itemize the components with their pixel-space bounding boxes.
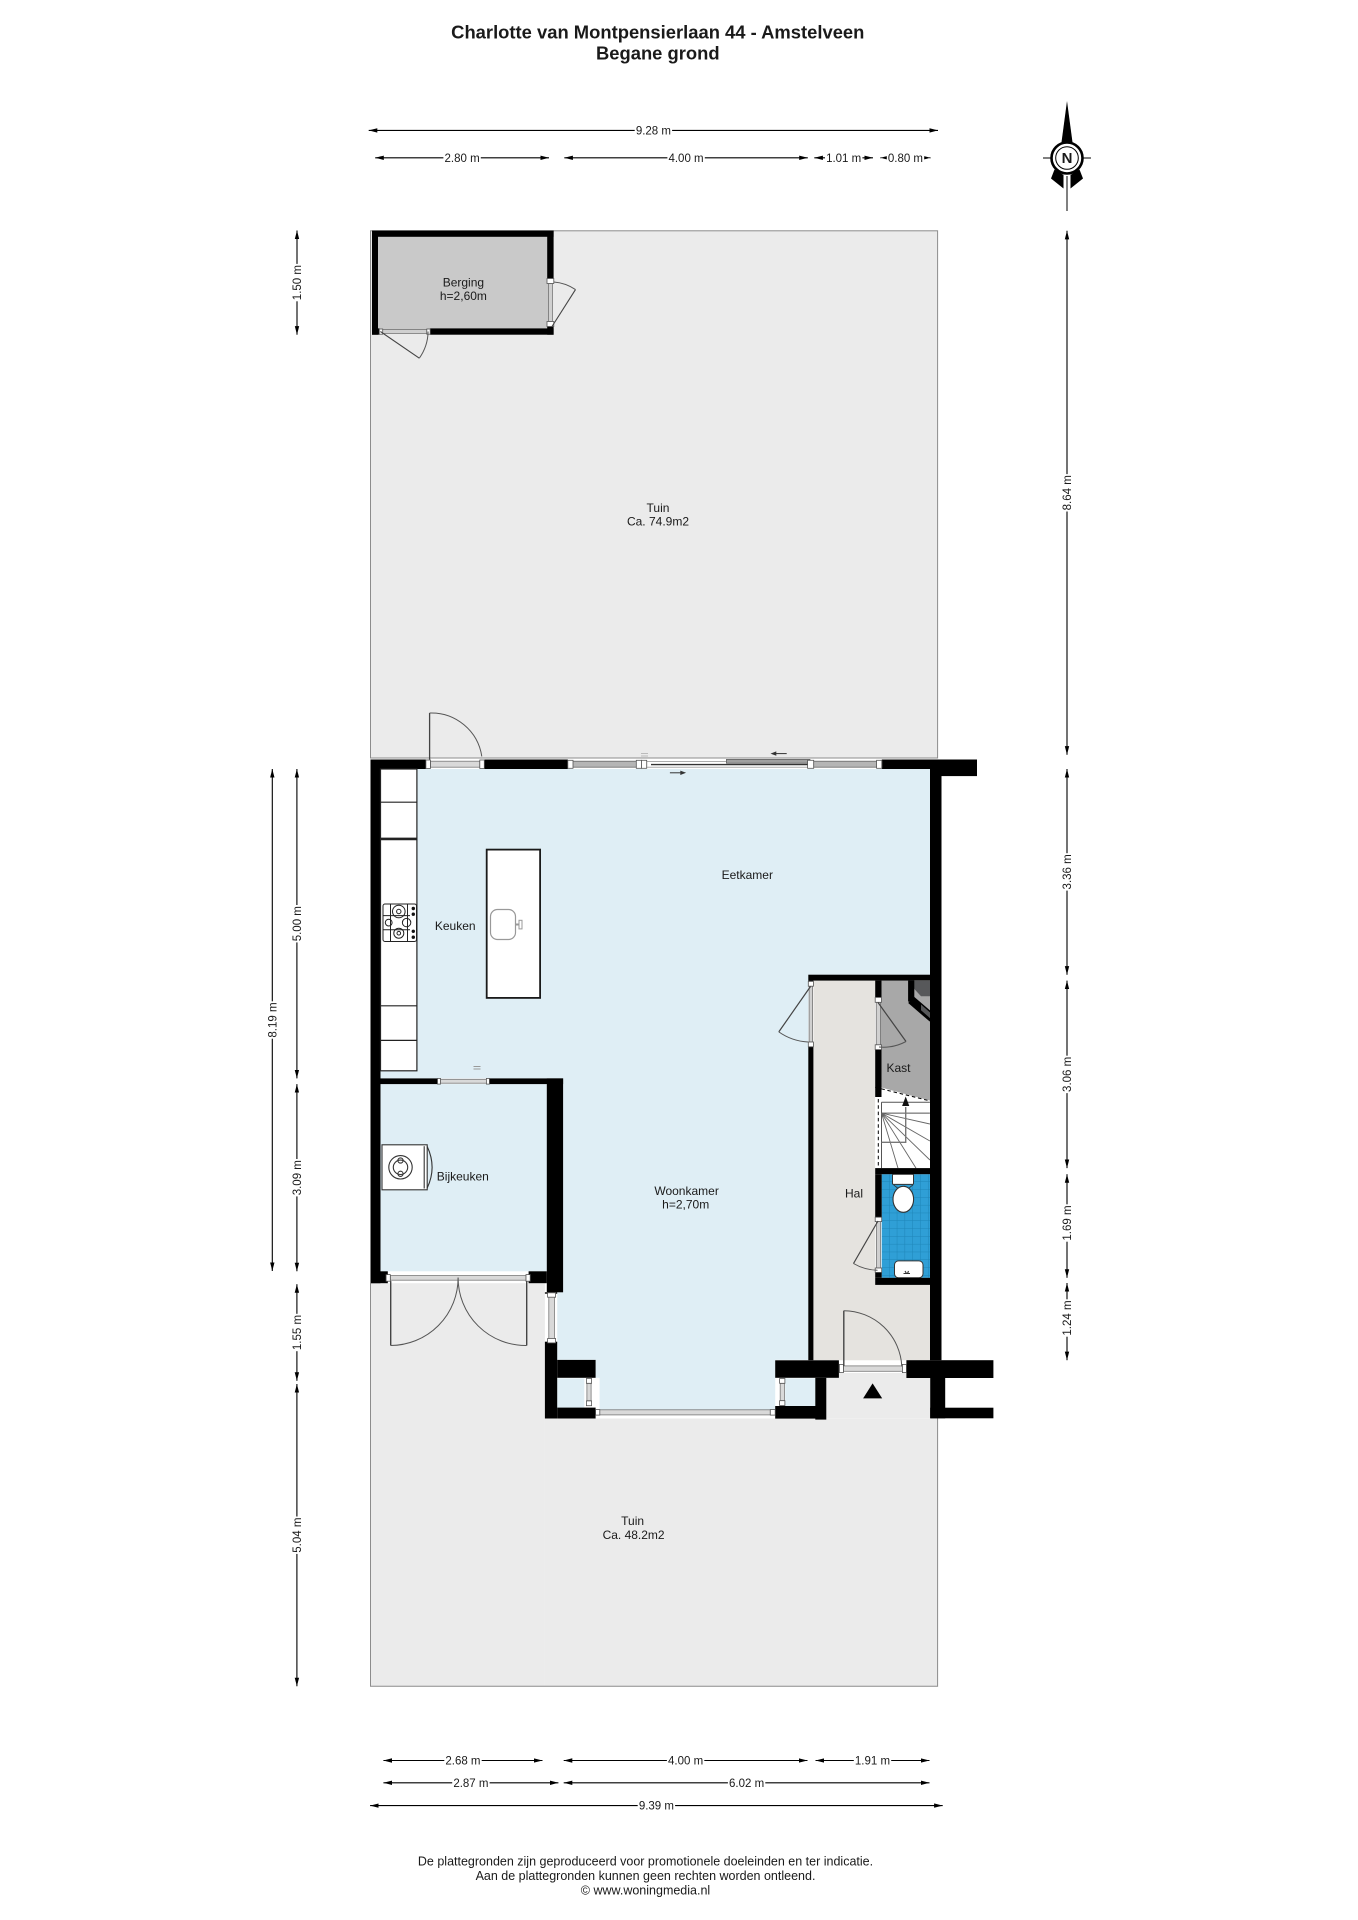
svg-text:2.87 m: 2.87 m: [453, 1778, 488, 1790]
svg-text:1.01 m: 1.01 m: [826, 153, 861, 165]
svg-text:Aan de plattegronden kunnen ge: Aan de plattegronden kunnen geen rechten…: [476, 1869, 816, 1883]
svg-text:De plattegronden zijn geproduc: De plattegronden zijn geproduceerd voor …: [418, 1855, 873, 1869]
svg-text:© www.woningmedia.nl: © www.woningmedia.nl: [581, 1884, 710, 1898]
svg-text:Keuken: Keuken: [435, 919, 476, 933]
svg-text:1.91 m: 1.91 m: [855, 1756, 890, 1768]
svg-text:3.06 m: 3.06 m: [1062, 1057, 1074, 1092]
svg-text:1.55 m: 1.55 m: [292, 1315, 304, 1350]
svg-text:h=2,70m: h=2,70m: [662, 1198, 709, 1212]
svg-text:9.39 m: 9.39 m: [639, 1801, 674, 1813]
svg-text:6.02 m: 6.02 m: [729, 1778, 764, 1790]
svg-text:5.04 m: 5.04 m: [292, 1518, 304, 1553]
svg-text:4.00 m: 4.00 m: [668, 153, 703, 165]
svg-text:Berging: Berging: [443, 276, 484, 290]
svg-text:8.19 m: 8.19 m: [267, 1002, 279, 1037]
svg-text:Ca. 74.9m2: Ca. 74.9m2: [627, 515, 689, 529]
svg-text:2.68 m: 2.68 m: [445, 1756, 480, 1768]
svg-text:Charlotte van Montpensierlaan: Charlotte van Montpensierlaan 44 - Amste…: [451, 22, 864, 43]
svg-text:3.36 m: 3.36 m: [1062, 854, 1074, 889]
svg-text:Ca. 48.2m2: Ca. 48.2m2: [603, 1528, 665, 1542]
svg-text:Bijkeuken: Bijkeuken: [437, 1170, 489, 1184]
svg-text:1.69 m: 1.69 m: [1062, 1205, 1074, 1240]
svg-text:Woonkamer: Woonkamer: [654, 1184, 718, 1198]
svg-text:Hal: Hal: [845, 1187, 863, 1201]
svg-text:1.24 m: 1.24 m: [1062, 1300, 1074, 1335]
svg-text:9.28 m: 9.28 m: [636, 126, 671, 138]
svg-text:Kast: Kast: [886, 1061, 911, 1075]
svg-text:Eetkamer: Eetkamer: [722, 868, 773, 882]
svg-text:0.80 m: 0.80 m: [888, 153, 923, 165]
svg-text:h=2,60m: h=2,60m: [440, 289, 487, 303]
svg-text:3.09 m: 3.09 m: [292, 1160, 304, 1195]
svg-text:N: N: [1062, 150, 1073, 167]
svg-text:Tuin: Tuin: [647, 501, 670, 515]
svg-text:4.00 m: 4.00 m: [668, 1756, 703, 1768]
svg-text:Begane grond: Begane grond: [596, 43, 720, 64]
svg-text:8.64 m: 8.64 m: [1062, 475, 1074, 510]
svg-text:2.80 m: 2.80 m: [445, 153, 480, 165]
svg-text:5.00 m: 5.00 m: [292, 906, 304, 941]
svg-text:1.50 m: 1.50 m: [292, 265, 304, 300]
svg-text:Tuin: Tuin: [621, 1514, 644, 1528]
